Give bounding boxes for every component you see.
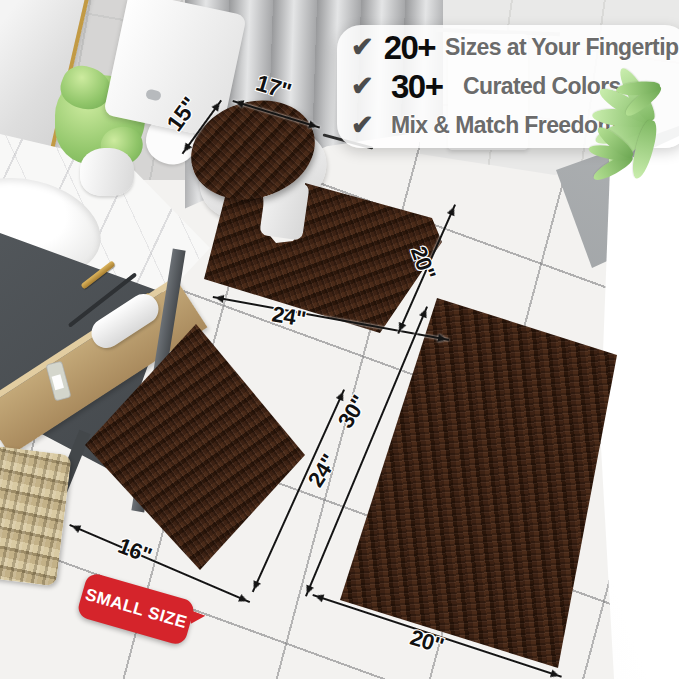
- check-icon: ✔: [351, 73, 381, 100]
- bottle-label: [52, 374, 64, 390]
- feature-label: Sizes at Your Fingertips: [445, 34, 679, 61]
- badge-tail: [190, 609, 206, 624]
- product-image: 17" 15" 24" 20" 30" 24" 16" 20" SMALL SI…: [0, 0, 679, 679]
- dim-label-contour-width: 24": [270, 301, 307, 332]
- check-icon: ✔: [351, 112, 381, 139]
- feature-row: ✔ 20+ Sizes at Your Fingertips: [351, 29, 679, 66]
- plant-pot: [80, 148, 134, 196]
- feature-label: Mix & Match Freedom: [391, 112, 617, 139]
- feature-stat: 30+: [391, 70, 453, 103]
- feature-label: Curated Colors: [463, 73, 621, 100]
- check-icon: ✔: [351, 34, 374, 61]
- feature-stat: 20+: [384, 31, 435, 64]
